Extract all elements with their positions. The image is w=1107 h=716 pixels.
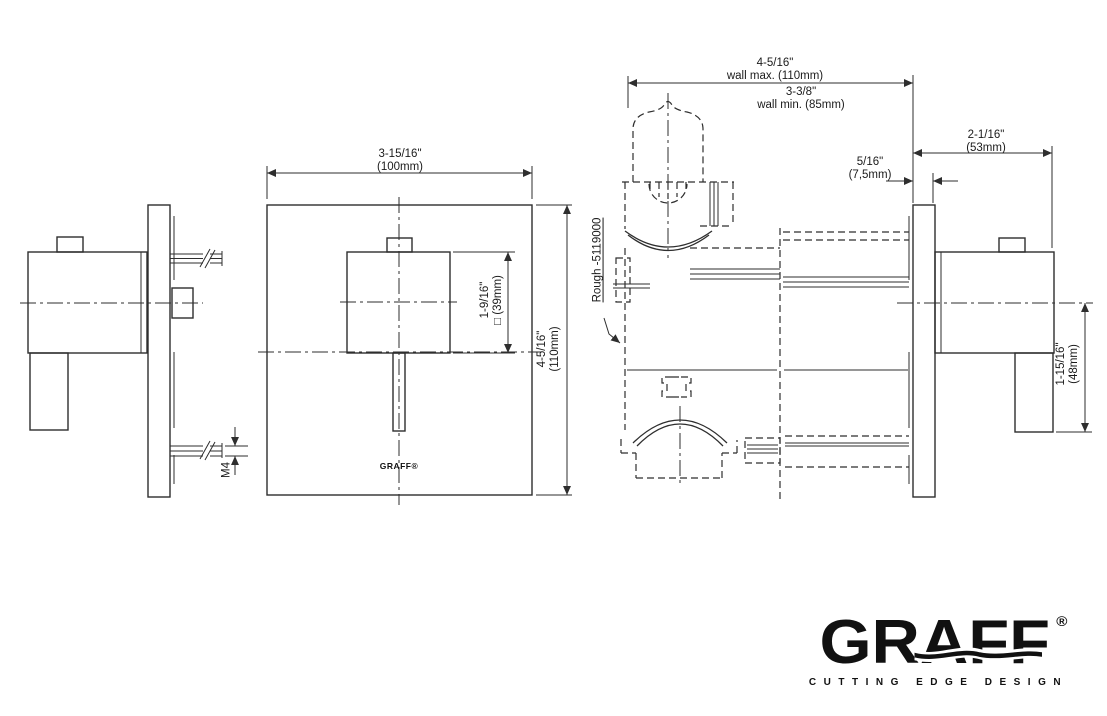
lower-screw-hidden-lines (785, 436, 909, 467)
brand-tagline: CUTTING EDGE DESIGN (795, 677, 1075, 688)
left-view-top-screw (170, 251, 222, 266)
plate-width-label: 3-15/16" (100mm) (377, 148, 423, 174)
plate-engraved-logo: GRAFF® (380, 461, 419, 471)
section-handle-tab (999, 238, 1025, 252)
brand-logo: GRAFF ® CUTTING EDGE DESIGN (795, 612, 1075, 688)
lever-drop-mm: (48mm) (1068, 342, 1081, 385)
wall-max-dimension-label: 4-5/16" wall max. (110mm) (727, 57, 823, 83)
wall-min-value: 3-3/8" (757, 86, 845, 99)
plate-width-mm: (100mm) (377, 161, 423, 174)
left-view-lever (30, 353, 68, 430)
technical-drawing-sheet: 4-5/16" wall max. (110mm) 3-3/8" wall mi… (0, 0, 1107, 716)
section-trim-plate (913, 205, 935, 497)
bottom-fitting-hidden (745, 438, 780, 463)
handle-size-value: 1-9/16" (479, 275, 492, 325)
left-side-view (20, 205, 248, 497)
left-view-bottom-screw (170, 443, 222, 458)
protrusion-dimension (913, 146, 1052, 248)
mounting-bracket-symbol (662, 377, 691, 397)
section-solid-details (613, 182, 909, 453)
plate-width-value: 3-15/16" (377, 148, 423, 161)
section-lever (1015, 353, 1053, 432)
registered-mark: ® (1056, 614, 1067, 628)
wall-max-note: wall max. (110mm) (727, 70, 823, 83)
rough-in-leader (604, 318, 620, 343)
wall-min-dimension-label: 3-3/8" wall min. (85mm) (757, 86, 845, 112)
lever-drop-value: 1-15/16" (1055, 342, 1068, 385)
valve-side-screw (616, 258, 630, 302)
screw-thread-label: M4 (221, 462, 234, 478)
plate-thickness-dimension (886, 173, 958, 203)
plate-height-mm: (110mm) (549, 326, 562, 371)
plate-thickness-label: 5/16" (7,5mm) (849, 156, 892, 182)
wall-min-note: wall min. (85mm) (757, 99, 845, 112)
handle-size-mm: □ (39mm) (492, 275, 505, 325)
plate-height-label: 4-5/16" (110mm) (536, 326, 562, 371)
protrusion-value: 2-1/16" (966, 129, 1006, 142)
plate-thickness-mm: (7,5mm) (849, 169, 892, 182)
handle-size-label: 1-9/16" □ (39mm) (479, 275, 505, 325)
protrusion-label: 2-1/16" (53mm) (966, 129, 1006, 155)
wall-max-value: 4-5/16" (727, 57, 823, 70)
plate-thickness-value: 5/16" (849, 156, 892, 169)
upper-screw-hidden-lines (690, 232, 909, 248)
front-view (258, 166, 572, 505)
protrusion-mm: (53mm) (966, 142, 1006, 155)
brand-logo-text: GRAFF (820, 608, 1051, 677)
left-view-handle-tab (57, 237, 83, 252)
rough-in-code-label: Rough -5119000 (592, 218, 605, 303)
brand-logo-wordmark: GRAFF ® (820, 612, 1051, 674)
section-view (604, 75, 1093, 500)
left-view-trim-plate (148, 205, 170, 497)
plate-height-value: 4-5/16" (536, 326, 549, 371)
lever-drop-label: 1-15/16" (48mm) (1055, 342, 1081, 385)
